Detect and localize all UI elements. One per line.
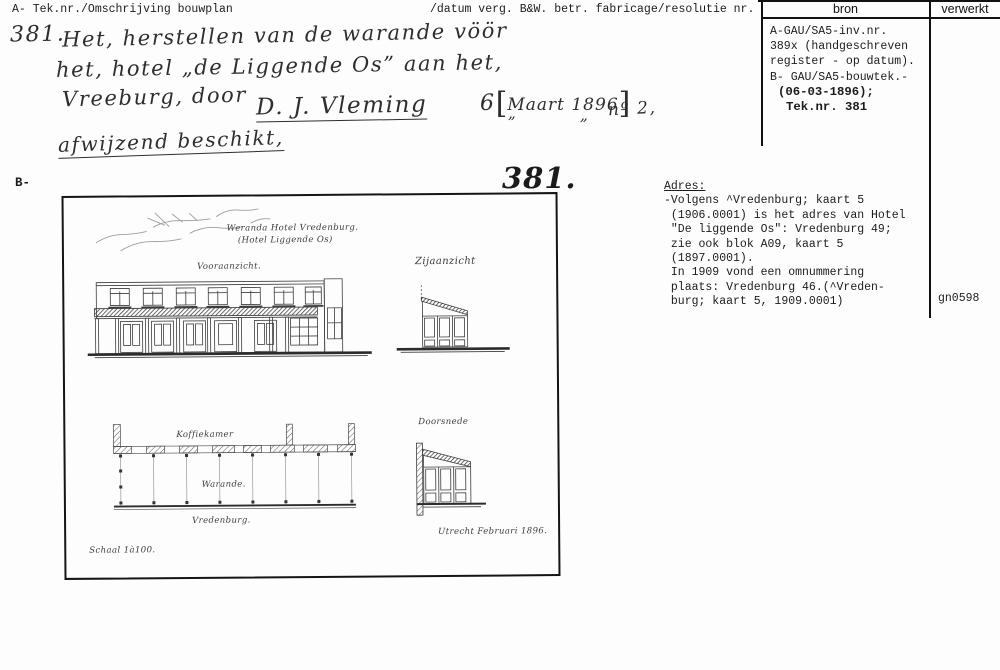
bron-line-bold: (06-03-1896);	[778, 85, 930, 101]
handwritten-line-3: Vreeburg, door	[62, 83, 248, 112]
adres-line: (1897.0001).	[664, 252, 929, 266]
adres-line: -Volgens ^Vredenburg; kaart 5	[664, 194, 929, 208]
handwritten-line-2: het, hotel „de Liggende Os” aan het,	[56, 50, 503, 82]
side-elevation-label: Zijaanzicht	[414, 256, 476, 267]
ditto-mark-1: „	[508, 104, 517, 122]
drawing-title-line1: Weranda Hotel Vredenburg.	[227, 223, 359, 234]
veranda-posts	[95, 317, 288, 354]
adres-line: "De liggende Os": Vredenburg 49;	[664, 223, 929, 237]
handwritten-decision: afwijzend beschikt,	[58, 125, 285, 159]
plan-label-koffiekamer: Koffiekamer	[175, 430, 234, 440]
plan-label-warande: Warande.	[202, 480, 246, 490]
adres-line: plaats: Vredenburg 46.(^Vreden-	[664, 281, 929, 295]
bron-line: register - op datum).	[770, 54, 930, 69]
upper-windows	[108, 287, 323, 308]
section-b-label: B-	[15, 176, 30, 191]
blueprint-drawing: Weranda Hotel Vredenburg. (Hotel Liggend…	[64, 194, 559, 578]
archive-card: A- Tek.nr./Omschrijving bouwplan /datum …	[0, 0, 1000, 670]
date-bracket-open: [	[496, 86, 508, 121]
section-view: Doorsnede	[416, 417, 486, 516]
adres-line: burg; kaart 5, 1909.0001)	[664, 295, 929, 309]
bron-line: 389x (handgeschreven	[770, 39, 930, 54]
drawing-date-place: Utrecht Februari 1896.	[438, 526, 547, 537]
veranda-doors	[120, 320, 276, 352]
bron-block: A-GAU/SA5-inv.nr. 389x (handgeschreven r…	[770, 24, 930, 116]
verwerkt-code: gn0598	[938, 291, 979, 306]
handwritten-date-day: 6	[480, 91, 496, 116]
blueprint-frame: Weranda Hotel Vredenburg. (Hotel Liggend…	[61, 192, 560, 580]
adres-line: In 1909 vond een omnummering	[664, 266, 929, 280]
ditto-mark-2: „	[580, 106, 589, 124]
header-tek-nr-label: A- Tek.nr./Omschrijving bouwplan	[12, 2, 233, 17]
wall-piers	[113, 445, 355, 454]
front-elevation-label: Vooraanzicht.	[197, 261, 261, 272]
drawing-scale: Schaal 1à100.	[89, 544, 155, 556]
drawing-title-line2: (Hotel Liggende Os)	[238, 234, 333, 246]
handwritten-date-month-year: Maart 1896	[507, 95, 618, 115]
header-datum-label: /datum verg. B&W. betr. fabricage/resolu…	[430, 2, 754, 17]
table-vertical-line-bron	[761, 0, 763, 146]
handwritten-number: 381.	[10, 22, 66, 48]
plan-posts	[121, 452, 352, 506]
bron-line: A-GAU/SA5-inv.nr.	[770, 24, 930, 39]
handwritten-line-1: Het, herstellen van de warande vöör	[62, 18, 508, 51]
header-bron-label: bron	[762, 2, 929, 16]
handwritten-resolution-number: nº 2,	[608, 98, 658, 121]
side-elevation: Zijaanzicht	[396, 255, 510, 352]
drawing-title: Weranda Hotel Vredenburg. (Hotel Liggend…	[227, 223, 359, 246]
plan-label-vredenburg: Vredenburg.	[192, 515, 251, 525]
plan-view: Koffiekamer Warande. Vredenburg.	[113, 423, 356, 527]
front-elevation: Vooraanzicht.	[87, 261, 372, 358]
section-label: Doorsnede	[417, 417, 468, 427]
handwritten-signature: D. J. Vleming	[256, 92, 428, 123]
drawing-big-number: 381.	[502, 161, 577, 195]
bron-line: B- GAU/SA5-bouwtek.-	[770, 70, 930, 85]
header-verwerkt-label: verwerkt	[930, 2, 1000, 16]
plan-post-dots	[119, 453, 353, 505]
adres-line: zie ook blok A09, kaart 5	[664, 238, 929, 252]
adres-line: (1906.0001) is het adres van Hotel	[664, 209, 929, 223]
adres-heading: Adres:	[664, 180, 929, 194]
table-header-underline	[762, 17, 1000, 19]
adres-block: Adres: -Volgens ^Vredenburg; kaart 5 (19…	[664, 180, 929, 310]
bron-line-bold: Tek.nr. 381	[786, 100, 930, 116]
